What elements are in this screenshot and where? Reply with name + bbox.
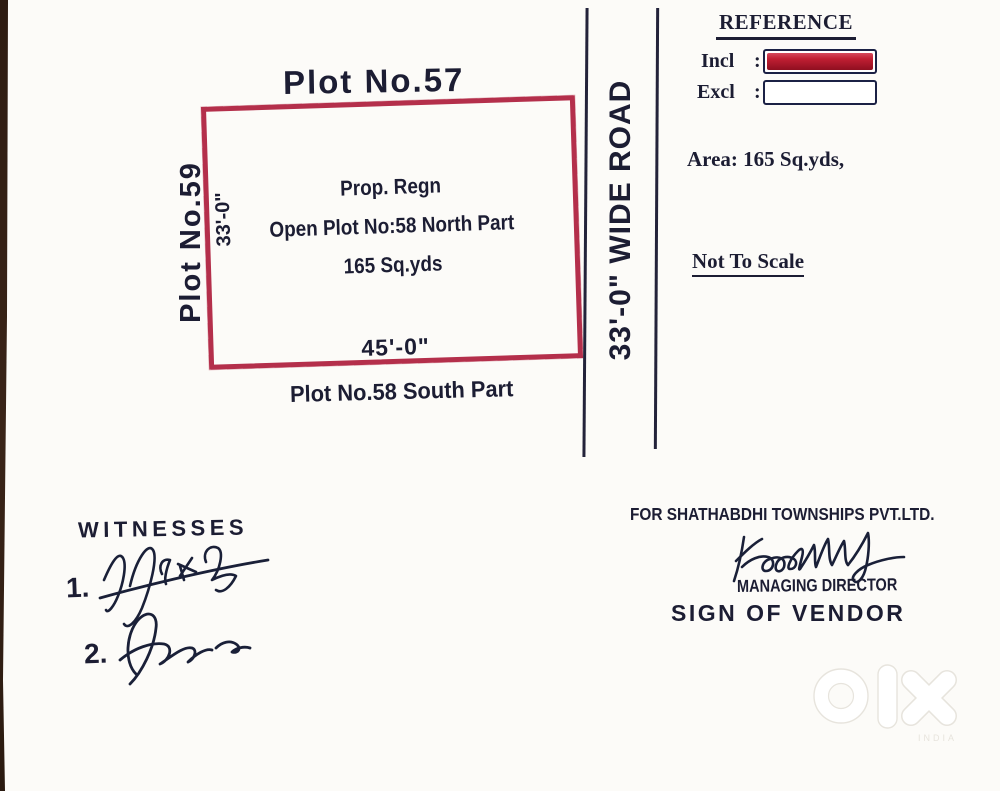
- vendor-company-line: FOR SHATHABDHI TOWNSHIPS PVT.LTD.: [630, 504, 935, 525]
- road-boundary-line-left: [582, 8, 588, 457]
- excl-swatch-fill: [767, 84, 873, 101]
- excl-legend-swatch: [763, 80, 877, 105]
- olx-logo-icon: [814, 665, 947, 728]
- witness-2-signature: [112, 604, 260, 688]
- incl-swatch-fill: [767, 53, 873, 70]
- plot-59-label: Plot No.59: [175, 147, 203, 337]
- plot-57-label: Plot No.57: [283, 60, 514, 102]
- reference-title: REFERENCE: [716, 10, 856, 40]
- olx-watermark: INDIA: [808, 658, 973, 758]
- plot-boundary-rectangle: Prop. Regn Open Plot No:58 North Part 16…: [201, 95, 583, 370]
- sign-of-vendor-label: SIGN OF VENDOR: [671, 600, 905, 627]
- vendor-role: MANAGING DIRECTOR: [737, 574, 897, 597]
- paper-edge-shadow: [0, 0, 9, 791]
- not-to-scale-note: Not To Scale: [692, 249, 804, 277]
- plot-58-south-label: Plot No.58 South Part: [290, 376, 490, 408]
- road-label: 33'-0" WIDE ROAD: [604, 55, 636, 385]
- plot-height-dimension: 33'-0": [211, 180, 237, 259]
- plot-width-dimension: 45'-0": [213, 328, 578, 366]
- witness-1-number: 1.: [65, 572, 89, 605]
- area-text: Area: 165 Sq.yds,: [687, 147, 844, 172]
- olx-watermark-country: INDIA: [918, 733, 957, 743]
- excl-colon: :: [754, 81, 761, 104]
- incl-legend-swatch: [763, 49, 877, 74]
- plot-description: Prop. Regn Open Plot No:58 North Part 16…: [230, 163, 554, 290]
- incl-label: Incl: [701, 50, 734, 73]
- witness-2-number: 2.: [83, 638, 107, 671]
- incl-colon: :: [754, 50, 761, 73]
- road-boundary-line-right: [654, 8, 659, 449]
- excl-label: Excl: [697, 81, 735, 104]
